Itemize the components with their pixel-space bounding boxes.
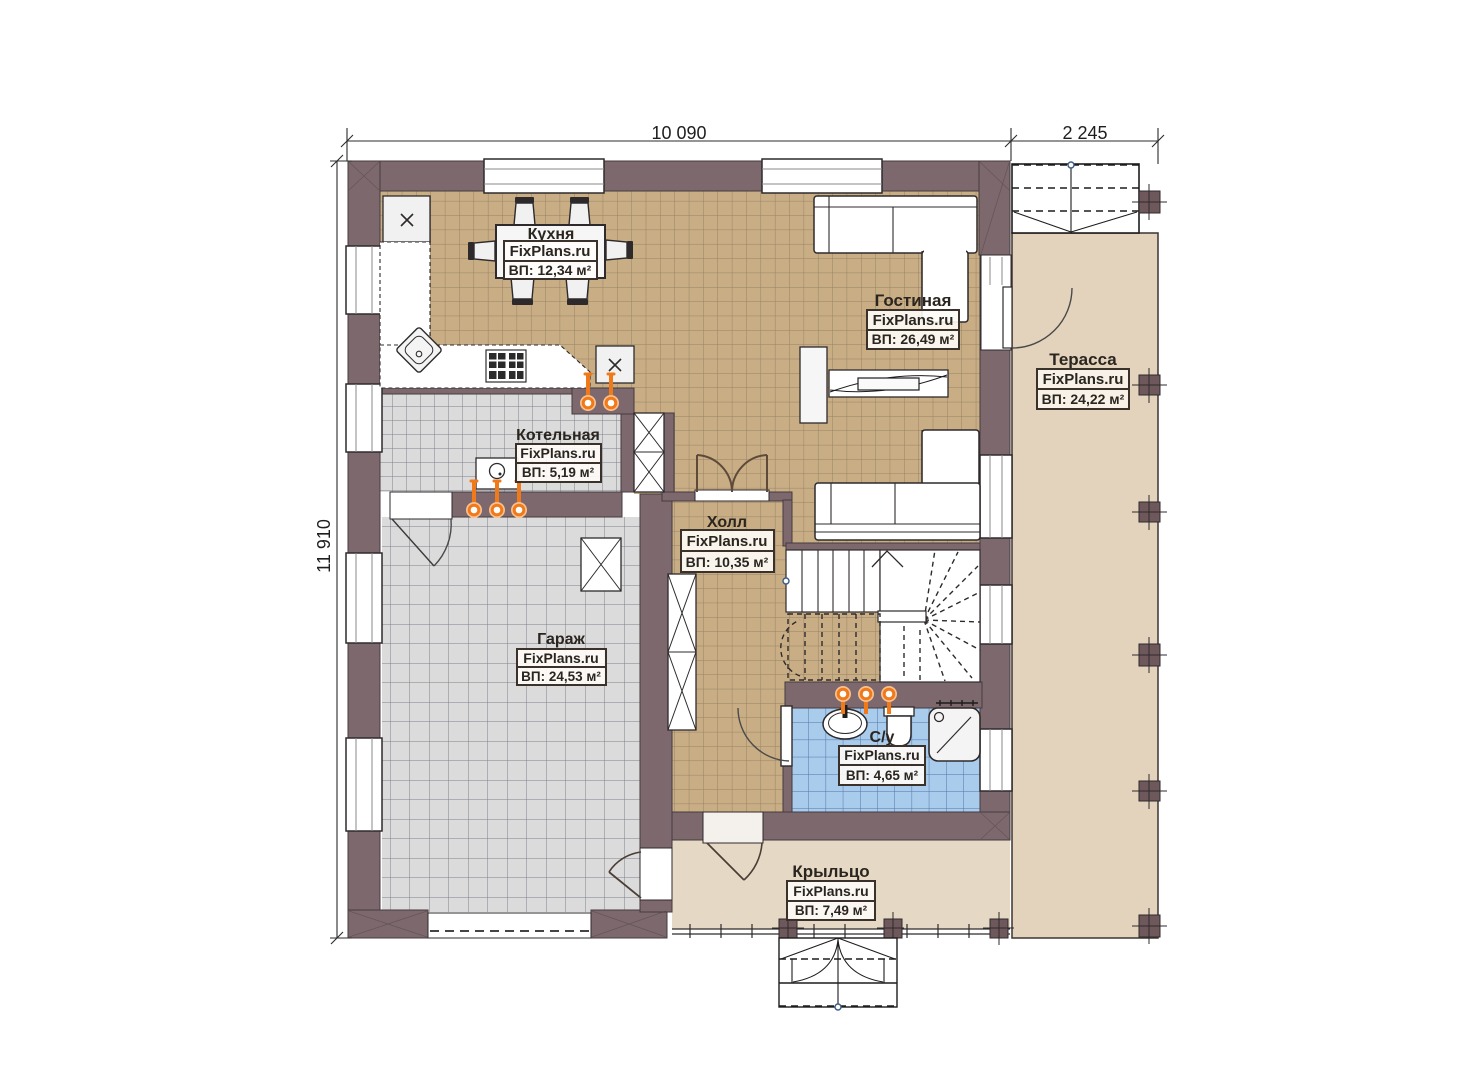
svg-text:Котельная: Котельная [516, 427, 600, 444]
svg-text:ВП: 4,65 м²: ВП: 4,65 м² [846, 768, 919, 783]
svg-text:ВП: 12,34 м²: ВП: 12,34 м² [509, 262, 592, 278]
svg-text:ВП: 10,35 м²: ВП: 10,35 м² [686, 554, 769, 570]
svg-text:ВП: 24,22 м²: ВП: 24,22 м² [1042, 391, 1125, 407]
svg-text:FixPlans.ru: FixPlans.ru [687, 533, 768, 550]
svg-text:ВП: 5,19 м²: ВП: 5,19 м² [522, 465, 595, 480]
svg-text:FixPlans.ru: FixPlans.ru [1043, 371, 1124, 388]
svg-text:FixPlans.ru: FixPlans.ru [873, 312, 954, 329]
svg-text:ВП: 7,49 м²: ВП: 7,49 м² [795, 903, 868, 918]
svg-text:ВП: 26,49 м²: ВП: 26,49 м² [872, 331, 955, 347]
svg-text:FixPlans.ru: FixPlans.ru [510, 243, 591, 260]
svg-text:Гостиная: Гостиная [875, 291, 952, 310]
svg-text:Крыльцо: Крыльцо [792, 862, 869, 881]
svg-text:FixPlans.ru: FixPlans.ru [844, 747, 919, 763]
svg-text:11 910: 11 910 [314, 519, 334, 573]
svg-text:FixPlans.ru: FixPlans.ru [523, 650, 598, 666]
svg-text:Гараж: Гараж [537, 631, 585, 648]
svg-text:10 090: 10 090 [651, 123, 706, 143]
svg-text:2 245: 2 245 [1062, 123, 1107, 143]
svg-text:FixPlans.ru: FixPlans.ru [793, 883, 868, 899]
svg-text:FixPlans.ru: FixPlans.ru [520, 445, 595, 461]
svg-text:Терасса: Терасса [1049, 350, 1117, 369]
svg-text:Холл: Холл [707, 514, 747, 531]
svg-text:ВП: 24,53 м²: ВП: 24,53 м² [521, 669, 601, 684]
svg-text:С/у: С/у [870, 729, 895, 746]
